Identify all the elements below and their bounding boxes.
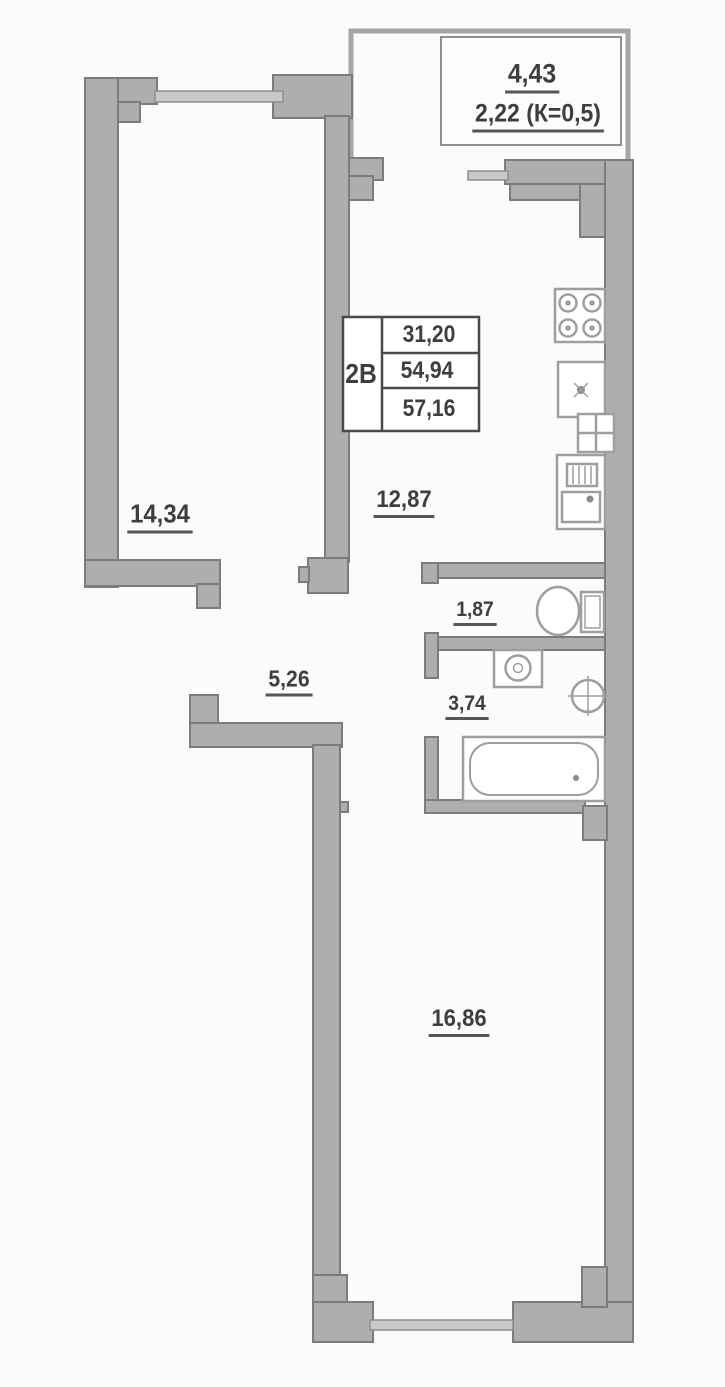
wall bbox=[349, 176, 373, 200]
washing-machine-icon bbox=[494, 650, 542, 687]
walls-group bbox=[85, 75, 633, 1342]
bedroom-area-label: 14,34 bbox=[127, 499, 192, 534]
bathtub-icon bbox=[463, 737, 605, 801]
floor-plan-drawing bbox=[0, 0, 725, 1387]
wall bbox=[308, 558, 348, 593]
wall bbox=[583, 806, 607, 840]
washbasin-icon bbox=[568, 676, 608, 716]
living-area-value: 31,20 bbox=[403, 321, 456, 349]
balcony-door bbox=[468, 171, 508, 180]
window bbox=[370, 1320, 513, 1330]
wall bbox=[85, 560, 220, 586]
appliance-icon bbox=[578, 414, 614, 452]
wall bbox=[299, 567, 309, 582]
worktop-icon bbox=[558, 362, 605, 417]
unit-type-label: 2В bbox=[345, 358, 377, 390]
apartment-area-value: 54,94 bbox=[401, 357, 454, 385]
kitchen-sink-icon bbox=[557, 455, 605, 529]
wc-area-label: 1,87 bbox=[453, 598, 496, 626]
wall bbox=[510, 184, 580, 200]
wall bbox=[605, 160, 633, 1342]
wall bbox=[273, 75, 352, 118]
balcony-coefficient-label: 2,22 (К=0,5) bbox=[472, 100, 603, 133]
wall bbox=[425, 633, 438, 678]
total-area-value: 57,16 bbox=[403, 395, 456, 423]
bathroom-area-label: 3,74 bbox=[445, 692, 488, 720]
toilet-icon bbox=[537, 587, 604, 635]
wall bbox=[438, 563, 605, 578]
wall bbox=[197, 584, 220, 608]
wall bbox=[425, 637, 605, 650]
living-room-area-label: 16,86 bbox=[429, 1005, 490, 1037]
wall bbox=[422, 563, 438, 583]
wall bbox=[582, 1267, 607, 1307]
window bbox=[155, 91, 283, 102]
wall bbox=[190, 723, 342, 747]
wall bbox=[118, 102, 140, 122]
wall bbox=[513, 1302, 633, 1342]
stove-icon bbox=[555, 289, 605, 342]
balcony-area-label: 4,43 bbox=[505, 59, 559, 94]
kitchen-living-area-label: 12,87 bbox=[374, 486, 435, 518]
wall bbox=[313, 745, 340, 1305]
wall bbox=[313, 1302, 373, 1342]
wall bbox=[340, 802, 348, 812]
hallway-area-label: 5,26 bbox=[266, 666, 313, 697]
wall bbox=[85, 78, 118, 587]
floor-plan: 14,34 12,87 5,26 1,87 3,74 16,86 4,43 2,… bbox=[0, 0, 725, 1387]
